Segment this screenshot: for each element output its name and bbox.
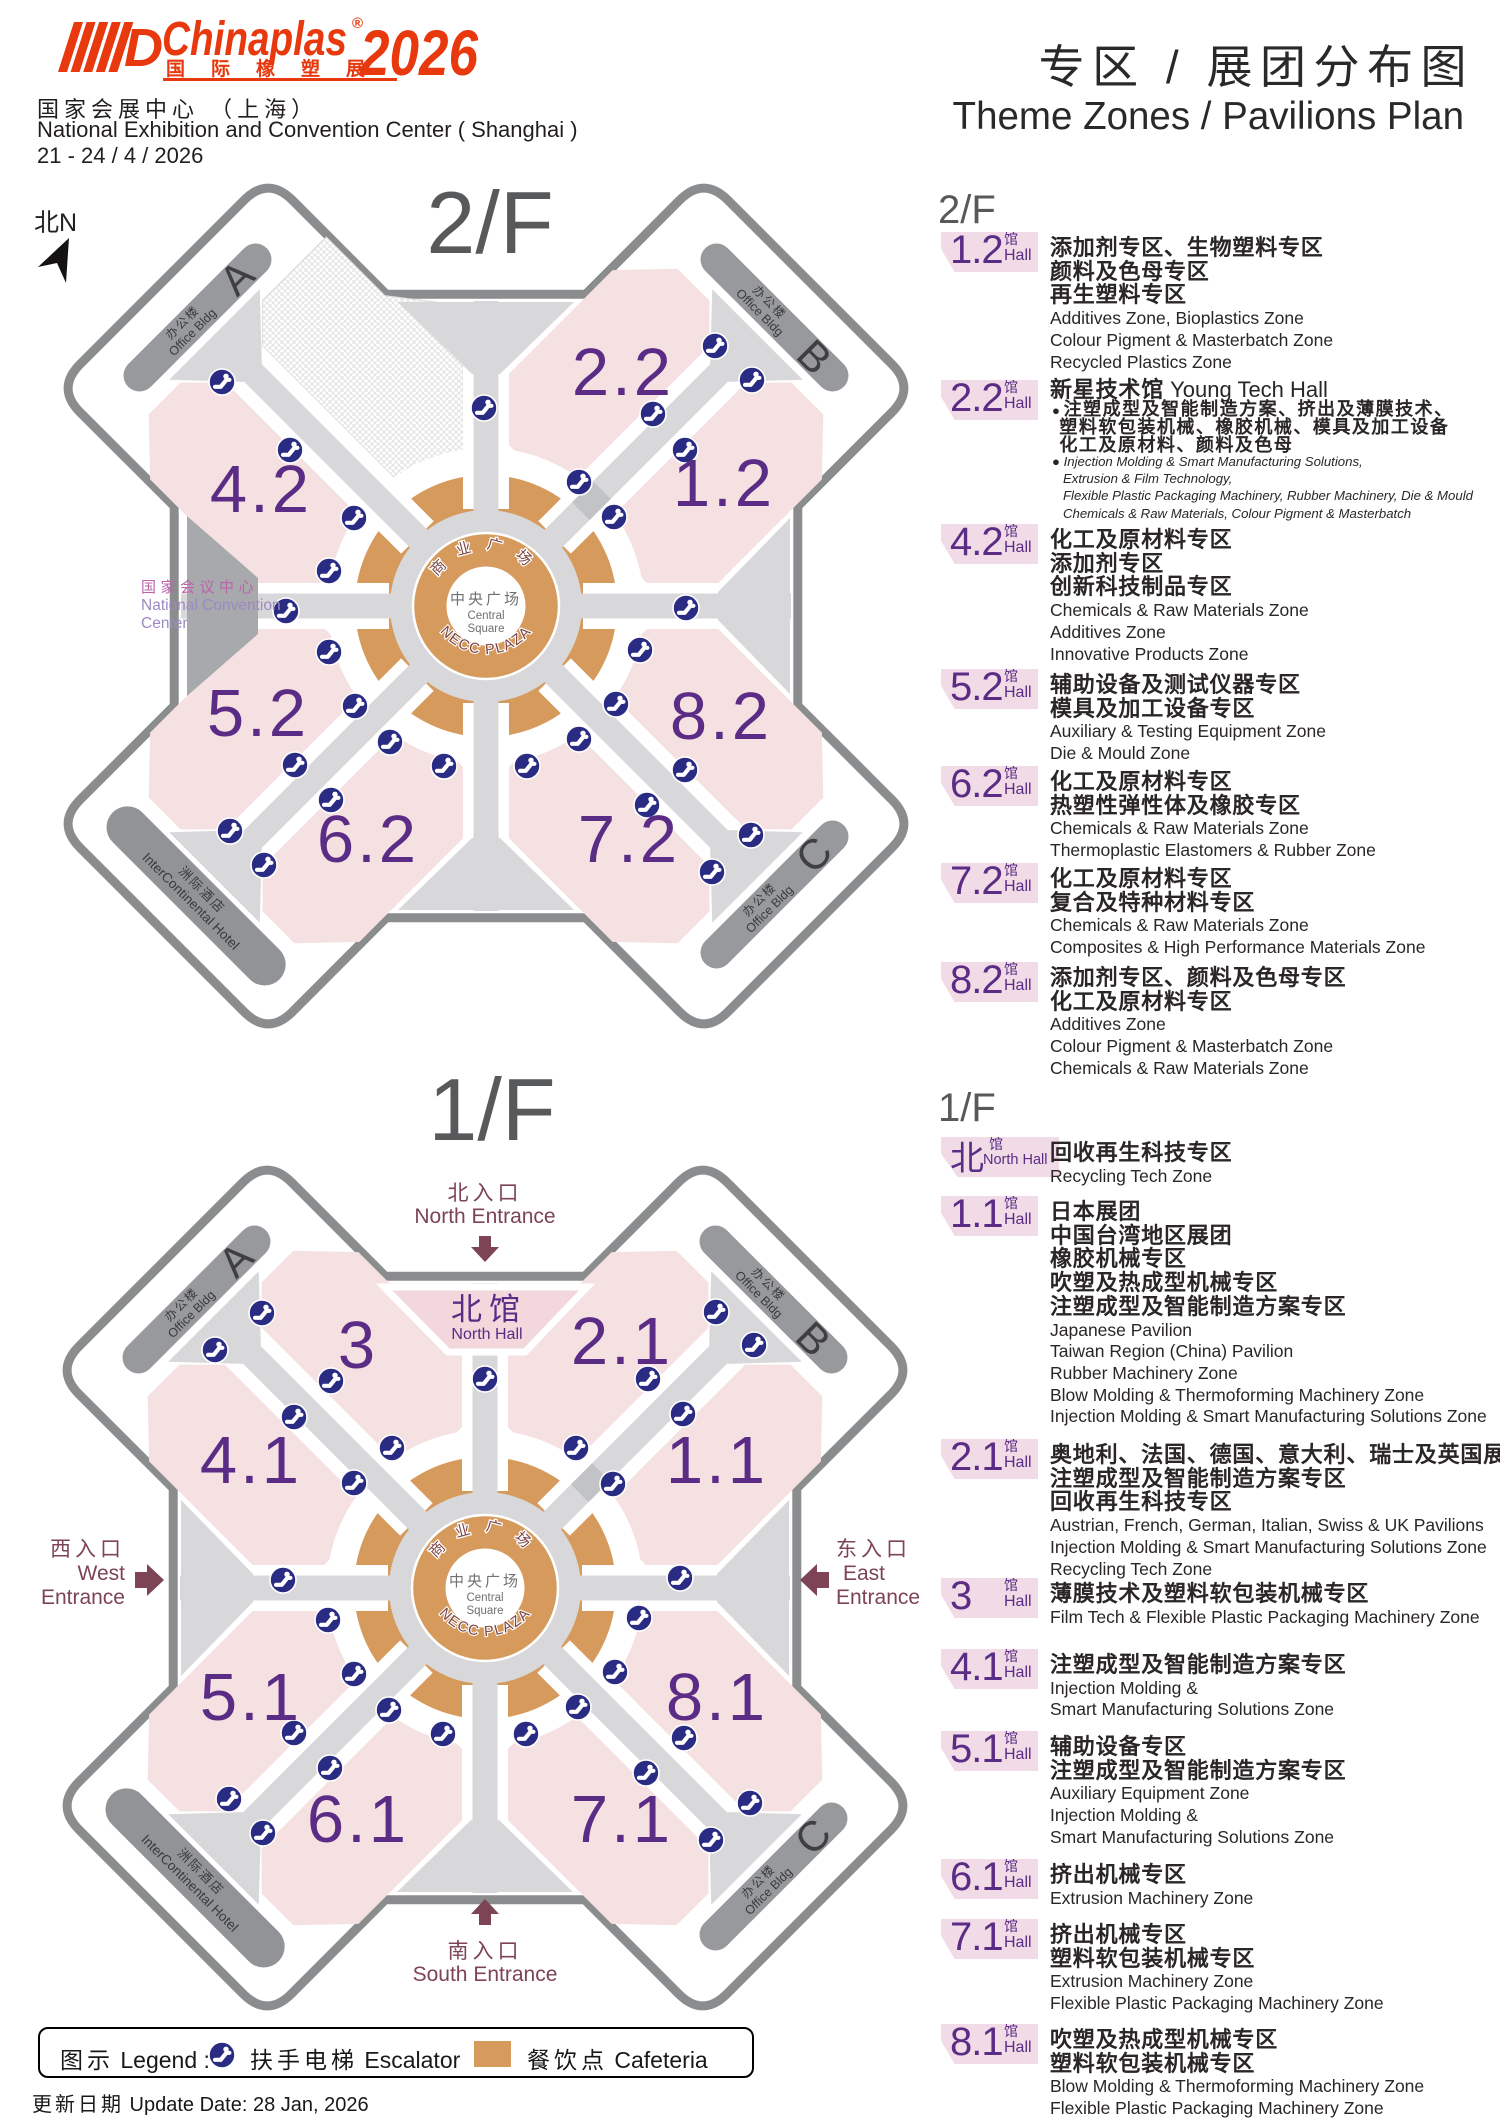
svg-text:South Entrance: South Entrance xyxy=(413,1963,558,1986)
svg-text:Center: Center xyxy=(141,615,188,632)
svg-text:8.1: 8.1 xyxy=(666,1660,768,1735)
svg-text:5.2: 5.2 xyxy=(207,676,309,751)
svg-text:4.1: 4.1 xyxy=(200,1423,302,1498)
svg-text:Entrance: Entrance xyxy=(41,1586,125,1609)
svg-text:Square: Square xyxy=(466,1605,503,1617)
svg-text:中央广场: 中央广场 xyxy=(450,591,522,608)
svg-text:中央广场: 中央广场 xyxy=(449,1573,521,1590)
svg-text:North Entrance: North Entrance xyxy=(414,1205,555,1228)
svg-text:1/F: 1/F xyxy=(428,1060,555,1159)
svg-text:North Hall: North Hall xyxy=(451,1326,522,1343)
svg-text:1.1: 1.1 xyxy=(666,1423,768,1498)
svg-text:East: East xyxy=(843,1562,885,1585)
svg-text:西入口: 西入口 xyxy=(50,1538,125,1561)
svg-text:7.1: 7.1 xyxy=(571,1782,673,1857)
svg-text:8.2: 8.2 xyxy=(670,679,772,754)
svg-text:6.2: 6.2 xyxy=(317,802,419,877)
svg-text:北馆: 北馆 xyxy=(451,1292,527,1327)
svg-text:2.1: 2.1 xyxy=(571,1304,673,1379)
svg-text:2/F: 2/F xyxy=(426,173,553,272)
svg-text:5.1: 5.1 xyxy=(200,1660,302,1735)
svg-text:1.2: 1.2 xyxy=(673,446,775,521)
svg-text:National Convention: National Convention xyxy=(141,597,281,614)
svg-text:Square: Square xyxy=(467,623,504,635)
svg-text:3: 3 xyxy=(338,1308,378,1383)
svg-text:West: West xyxy=(78,1562,126,1585)
svg-text:国际橡塑展: 国际橡塑展 xyxy=(166,57,391,80)
svg-text:北N: 北N xyxy=(34,209,77,237)
svg-text:Central: Central xyxy=(466,1592,503,1604)
svg-text:D: D xyxy=(124,18,163,78)
svg-text:2026: 2026 xyxy=(359,17,478,89)
svg-text:国家会议中心: 国家会议中心 xyxy=(141,579,258,596)
svg-text:东入口: 东入口 xyxy=(836,1538,911,1561)
svg-text:Entrance: Entrance xyxy=(836,1586,920,1609)
svg-text:北入口: 北入口 xyxy=(448,1182,523,1205)
svg-text:Central: Central xyxy=(467,610,504,622)
svg-text:7.2: 7.2 xyxy=(578,802,680,877)
svg-text:南入口: 南入口 xyxy=(448,1940,523,1963)
svg-text:6.1: 6.1 xyxy=(307,1782,409,1857)
svg-text:2.2: 2.2 xyxy=(572,335,674,410)
svg-text:4.2: 4.2 xyxy=(210,452,312,527)
